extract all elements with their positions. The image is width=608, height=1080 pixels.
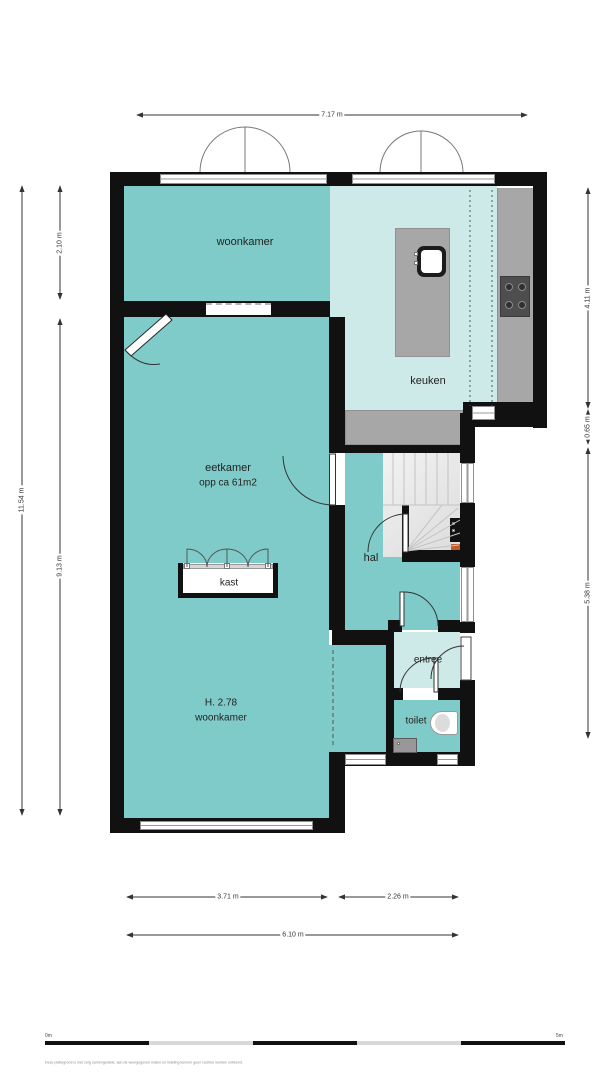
door-woonkamer-eetkamer-diagonal — [125, 314, 172, 365]
dim-right-top: 4.11 m — [585, 286, 592, 311]
door-eetkamer-hal — [283, 454, 336, 505]
dim-left-outer: 11.54 m — [19, 486, 26, 515]
label-woonkamer-main: woonkamer — [195, 713, 247, 724]
label-woonkamer-height: H. 2.78 — [205, 698, 237, 709]
scale-end-label: 5m — [556, 1033, 563, 1039]
scale-bar-segment — [149, 1041, 253, 1045]
dim-left-bottom: 9.13 m — [57, 553, 64, 578]
stair-treads — [383, 453, 460, 551]
french-doors-keuken — [380, 131, 463, 172]
dim-left-top: 2.10 m — [57, 230, 64, 255]
scale-bar-segment — [357, 1041, 461, 1045]
label-keuken: keuken — [410, 375, 445, 387]
scale-bar-segment — [253, 1041, 357, 1045]
label-woonkamer-top: woonkamer — [217, 236, 274, 248]
door-hal-stairs — [368, 514, 408, 552]
dim-bottom-left: 3.71 m — [215, 894, 240, 901]
dim-right-bottom: 5.38 m — [585, 580, 592, 605]
kast-folding-doors — [187, 549, 268, 567]
scale-bar-segment — [461, 1041, 565, 1045]
dimension-lines — [22, 115, 588, 935]
label-hal: hal — [364, 552, 379, 564]
scale-start-label: 0m — [45, 1033, 52, 1039]
dim-right-mid: 0.65 m — [585, 414, 592, 439]
door-hal-entree — [400, 592, 438, 626]
disclaimer-text: Deze plattegrond is met zorg samengestel… — [45, 1060, 243, 1065]
scale-bar-segment — [45, 1041, 149, 1045]
dim-bottom-total: 6.10 m — [280, 932, 305, 939]
label-eetkamer-area: opp ca 61m2 — [199, 478, 257, 489]
label-kast: kast — [220, 578, 238, 589]
dim-bottom-right: 2.26 m — [385, 894, 410, 901]
label-eetkamer: eetkamer — [205, 462, 251, 474]
label-toilet: toilet — [405, 716, 426, 727]
floor-plan-canvas: woonkamer keuken eetkamer opp ca 61m2 ha… — [0, 0, 608, 1080]
label-entree: entree — [414, 655, 442, 666]
plan-linework — [0, 0, 608, 1080]
french-doors-woonkamer — [200, 127, 290, 172]
dim-top: 7.17 m — [319, 112, 344, 119]
